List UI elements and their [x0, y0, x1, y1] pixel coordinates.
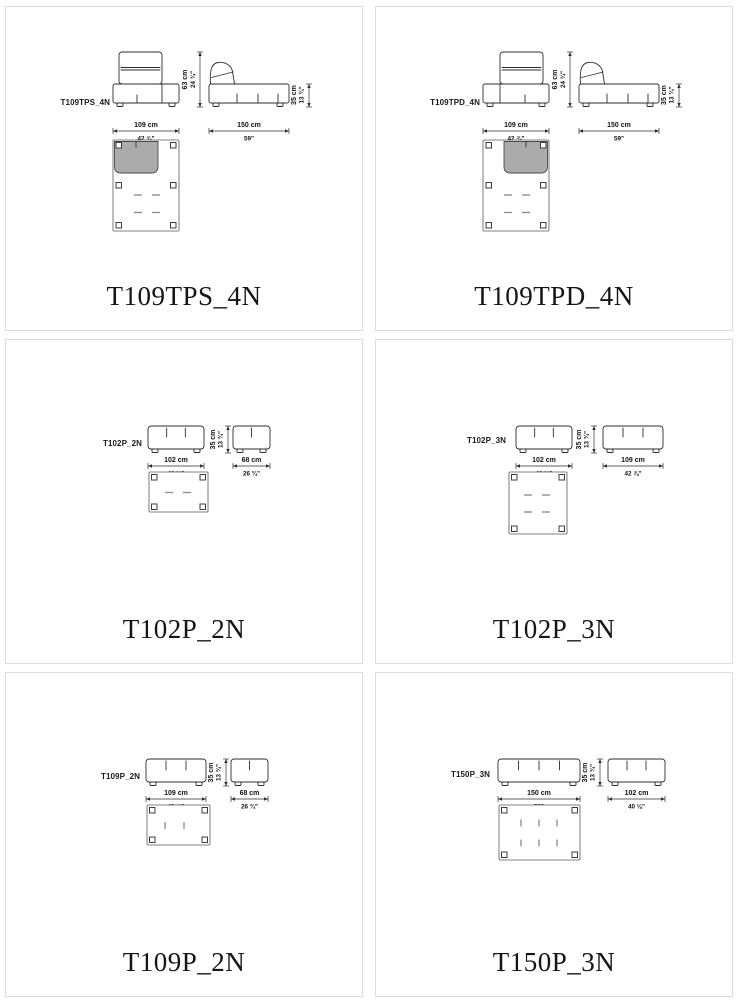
- side-view: [608, 759, 665, 786]
- dimension-label: 150 cm: [237, 122, 261, 129]
- dimension-label: 109 cm: [164, 790, 188, 797]
- seat-height-dimension: 35 cm13 ¾": [582, 759, 603, 786]
- side-view: [231, 759, 268, 786]
- dimension-label: 109 cm: [134, 122, 158, 129]
- seat-height-dimension: 35 cm13 ¾": [210, 426, 231, 453]
- dimension-label: 40 ⅛": [628, 804, 645, 811]
- dimension-label: 68 cm: [240, 790, 260, 797]
- product-cell-t102p-3n: 35 cm13 ¾"102 cm40 ⅛"109 cm42 ⅞" T102P_3…: [375, 339, 733, 664]
- product-code-small: T109P_2N: [40, 772, 140, 781]
- dimension-label: 24 ¾": [189, 71, 197, 88]
- product-cell-t150p-3n: 35 cm13 ¾"150 cm59"102 cm40 ⅛" T150P_3N …: [375, 672, 733, 997]
- dimension-label: 13 ¾": [668, 86, 676, 103]
- product-cell-t102p-2n: 35 cm13 ¾"102 cm40 ⅛"68 cm26 ¾" T102P_2N…: [5, 339, 363, 664]
- front-view: [113, 52, 179, 107]
- side-width-dimension: 102 cm40 ⅛": [608, 790, 665, 811]
- dimension-label: 68 cm: [242, 457, 262, 464]
- dimension-label: 26 ¾": [241, 803, 258, 811]
- dimension-label: 13 ¾": [215, 764, 223, 781]
- plan-view: [499, 805, 580, 860]
- side-width-dimension: 68 cm26 ¾": [231, 790, 268, 811]
- dimension-label: 35 cm: [291, 85, 298, 105]
- dimension-label: 109 cm: [621, 457, 645, 464]
- product-code-small: T102P_2N: [42, 439, 142, 448]
- dimension-label: 13 ¾": [589, 764, 597, 781]
- product-cell-t109tpd-4n: 63 cm24 ¾"35 cm13 ¾"109 cm42 ⅞"150 cm59"…: [375, 6, 733, 331]
- dimension-label: 63 cm: [182, 70, 189, 90]
- plan-view: [149, 472, 208, 512]
- product-cell-t109p-2n: 35 cm13 ¾"109 cm42 ⅞"68 cm26 ¾" T109P_2N…: [5, 672, 363, 997]
- front-view: [146, 759, 206, 786]
- product-code-label: T150P_3N: [376, 947, 732, 978]
- seat-height-dimension: 35 cm13 ¾": [661, 84, 682, 107]
- plan-view: [113, 140, 179, 231]
- side-view: [579, 62, 659, 106]
- product-code-small: T102P_3N: [406, 436, 506, 445]
- dimension-label: 102 cm: [164, 457, 188, 464]
- dimension-label: 63 cm: [552, 70, 559, 90]
- dimension-label: 59": [614, 136, 624, 143]
- side-width-dimension: 109 cm42 ⅞": [603, 457, 663, 478]
- side-width-dimension: 68 cm26 ¾": [233, 457, 270, 478]
- dimension-label: 35 cm: [661, 85, 668, 105]
- product-code-label: T109TPD_4N: [376, 281, 732, 312]
- plan-view: [483, 140, 549, 231]
- product-code-small: T150P_3N: [390, 770, 490, 779]
- seat-height-dimension: 35 cm13 ¾": [576, 426, 597, 453]
- dimension-label: 13 ¾": [217, 431, 225, 448]
- dimension-label: 35 cm: [582, 763, 589, 783]
- product-cell-t109tps-4n: 63 cm24 ¾"35 cm13 ¾"109 cm42 ⅞"150 cm59"…: [5, 6, 363, 331]
- dimension-label: 59": [244, 136, 254, 143]
- side-view: [233, 426, 270, 453]
- seat-height-dimension: 35 cm13 ¾": [208, 759, 229, 786]
- side-view: [603, 426, 663, 453]
- dimension-label: 109 cm: [504, 122, 528, 129]
- dimension-label: 13 ¾": [583, 431, 591, 448]
- product-code-label: T102P_2N: [6, 614, 362, 645]
- front-view: [516, 426, 572, 453]
- product-code-label: T109TPS_4N: [6, 281, 362, 312]
- plan-view: [147, 805, 210, 845]
- seat-height-dimension: 35 cm13 ¾": [291, 84, 312, 107]
- dimension-label: 13 ¾": [298, 86, 306, 103]
- dimension-label: 42 ⅞": [625, 471, 642, 478]
- side-width-dimension: 150 cm59": [209, 122, 289, 143]
- dimension-label: 35 cm: [576, 430, 583, 450]
- side-view: [209, 62, 289, 106]
- back-height-dimension: 63 cm24 ¾": [552, 52, 573, 107]
- product-code-label: T109P_2N: [6, 947, 362, 978]
- dimension-label: 35 cm: [208, 763, 215, 783]
- dimension-label: 102 cm: [625, 790, 649, 797]
- product-code-small: T109TPS_4N: [10, 98, 110, 107]
- front-width-dimension: 109 cm42 ⅞": [483, 122, 549, 143]
- back-height-dimension: 63 cm24 ¾": [182, 52, 203, 107]
- front-view: [483, 52, 549, 107]
- dimension-label: 24 ¾": [559, 71, 567, 88]
- dimension-label: 102 cm: [532, 457, 556, 464]
- front-width-dimension: 109 cm42 ⅞": [113, 122, 179, 143]
- product-code-label: T102P_3N: [376, 614, 732, 645]
- dimension-label: 35 cm: [210, 430, 217, 450]
- product-code-small: T109TPD_4N: [380, 98, 480, 107]
- dimension-label: 150 cm: [607, 122, 631, 129]
- side-width-dimension: 150 cm59": [579, 122, 659, 143]
- dimension-label: 26 ¾": [243, 470, 260, 478]
- dimension-label: 150 cm: [527, 790, 551, 797]
- front-view: [148, 426, 204, 453]
- plan-view: [509, 472, 567, 534]
- front-view: [498, 759, 580, 786]
- catalog-page: 63 cm24 ¾"35 cm13 ¾"109 cm42 ⅞"150 cm59"…: [0, 0, 738, 1002]
